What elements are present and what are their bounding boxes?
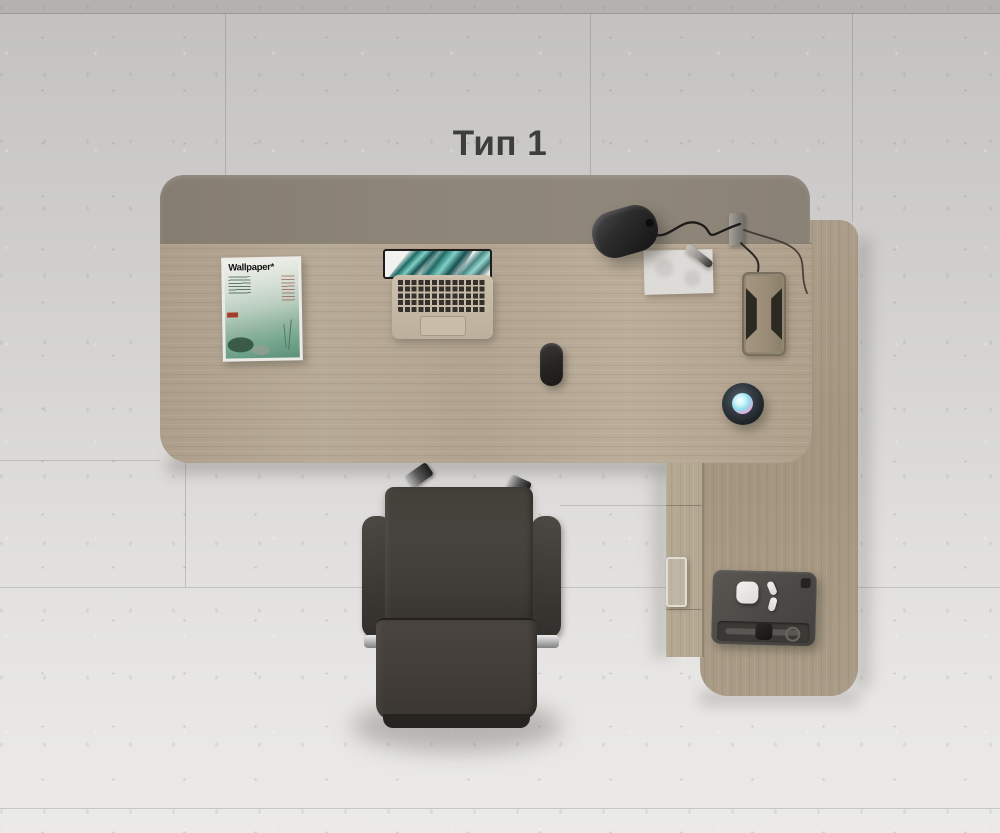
cover-art-foliage: [227, 337, 253, 352]
smart-watch: [755, 623, 772, 640]
chair-backrest: [385, 487, 533, 622]
desk-shadow: [856, 238, 876, 688]
cabinet-side: [666, 461, 704, 657]
magazine-cover: Wallpaper*: [224, 259, 300, 358]
lamp-mount: [729, 213, 745, 246]
cabinet-door-seam: [666, 609, 702, 610]
chair-seat-base: [383, 714, 530, 728]
laptop-trackpad: [420, 316, 466, 336]
cabinet-shadow: [648, 466, 668, 658]
cover-art-rock: [252, 345, 270, 355]
laptop-keyboard: [398, 278, 486, 312]
airpods-case: [736, 581, 759, 604]
earbud-left: [766, 580, 778, 596]
chair-seat: [376, 618, 537, 720]
laptop-body: [392, 275, 493, 339]
tile-seam: [225, 13, 226, 175]
earbud-right: [767, 597, 777, 612]
watch-tray: [717, 621, 809, 643]
tile-seam: [0, 0, 1000, 14]
lamp-arm-joint: [645, 218, 655, 228]
scene-title: Тип 1: [400, 124, 600, 164]
speaker-glow-top: [732, 393, 753, 414]
magazine-red-tag: [227, 312, 238, 317]
cover-art-reed: [283, 324, 286, 348]
cable-grommet: [742, 272, 786, 356]
watch-band-loop: [785, 627, 800, 642]
cabinet-door-seam: [666, 505, 702, 506]
cabinet-handle: [666, 557, 687, 607]
tile-seam: [0, 460, 160, 461]
smart-speaker: [722, 383, 764, 425]
magazine-coverlines: [281, 275, 294, 301]
magazine-masthead: Wallpaper*: [228, 262, 274, 274]
tablet-camera-icon: [800, 577, 811, 588]
tile-seam: [0, 808, 1000, 809]
cover-art-reed: [288, 320, 292, 350]
laptop: [383, 249, 493, 341]
chair-armrest-right: [531, 516, 561, 638]
tile-seam: [852, 13, 853, 222]
wallpaper-magazine: Wallpaper*: [221, 256, 303, 361]
desk-back-panel: [160, 175, 810, 245]
scene: Wallpaper* Т: [0, 0, 1000, 833]
magazine-coverlines: [228, 276, 250, 294]
tablet: [711, 570, 817, 647]
mouse: [540, 343, 563, 386]
